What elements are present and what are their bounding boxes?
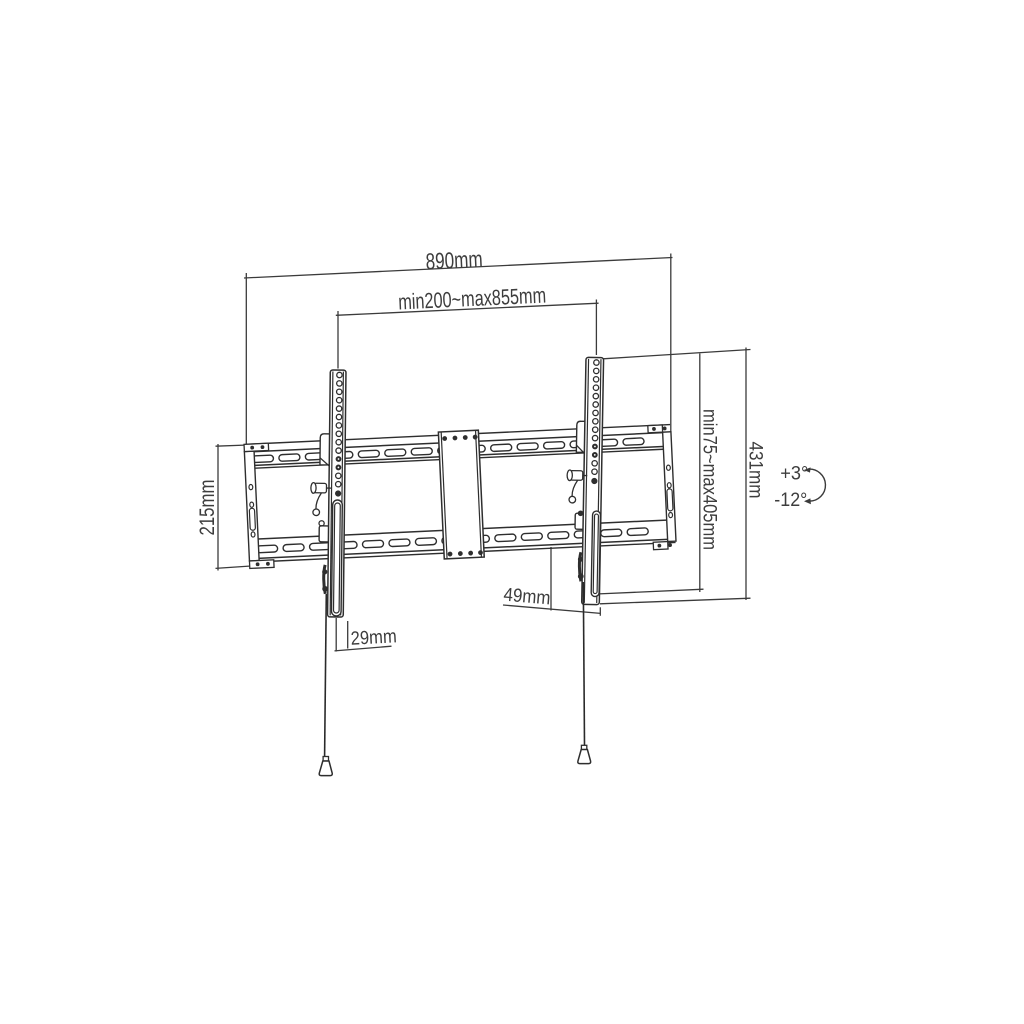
svg-text:215mm: 215mm (196, 480, 219, 536)
svg-text:min75~max405mm: min75~max405mm (699, 409, 721, 550)
svg-text:+3°: +3° (780, 463, 808, 485)
svg-text:890mm: 890mm (425, 246, 483, 275)
svg-text:-12°: -12° (774, 489, 807, 511)
svg-text:431mm: 431mm (745, 442, 766, 499)
svg-text:29mm: 29mm (350, 626, 397, 649)
svg-text:49mm: 49mm (503, 585, 552, 610)
